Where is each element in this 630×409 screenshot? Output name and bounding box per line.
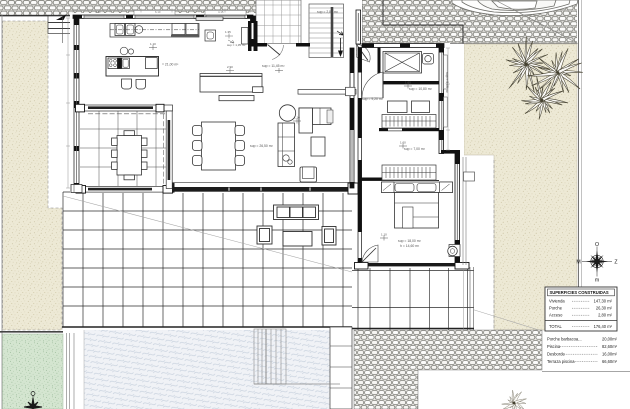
svg-text:sup = 11,45 m²: sup = 11,45 m² bbox=[262, 64, 285, 68]
svg-text:sup = 2,80 m²: sup = 2,80 m² bbox=[317, 10, 339, 14]
svg-text:Z: Z bbox=[614, 259, 617, 265]
svg-text:26,30 m²: 26,30 m² bbox=[596, 306, 613, 311]
svg-text:sup = 7,00 m²: sup = 7,00 m² bbox=[404, 147, 426, 151]
svg-text:1.10: 1.10 bbox=[150, 42, 156, 46]
svg-text:Piscina: Piscina bbox=[547, 344, 561, 349]
svg-text:sup = 5,05 m²: sup = 5,05 m² bbox=[445, 72, 449, 94]
svg-text:147,30 m²: 147,30 m² bbox=[594, 299, 613, 304]
svg-text:1.35: 1.35 bbox=[225, 30, 231, 34]
svg-text:66,60m²: 66,60m² bbox=[602, 359, 618, 364]
svg-text:16,00m²: 16,00m² bbox=[602, 352, 618, 357]
svg-text:2,80 m²: 2,80 m² bbox=[598, 313, 613, 318]
svg-text:sup = 18,00 m²: sup = 18,00 m² bbox=[398, 239, 422, 243]
svg-text:Porche barbacoa...: Porche barbacoa... bbox=[547, 337, 582, 342]
svg-text:= 21,00 m²: = 21,00 m² bbox=[162, 63, 179, 67]
svg-text:m: m bbox=[595, 278, 599, 284]
svg-text:Acceso: Acceso bbox=[549, 313, 563, 318]
svg-text:SUPERFICIES CONSTRUIDAS: SUPERFICIES CONSTRUIDAS bbox=[550, 290, 609, 295]
svg-text:sup = 9,20 m²: sup = 9,20 m² bbox=[362, 97, 384, 101]
svg-text:82,60m²: 82,60m² bbox=[602, 344, 618, 349]
svg-text:sup = 1,35 m²: sup = 1,35 m² bbox=[227, 43, 245, 47]
svg-text:Terraza piscina: Terraza piscina bbox=[547, 359, 575, 364]
svg-text:1.60: 1.60 bbox=[405, 81, 411, 85]
svg-text:sup = 26,50 m²: sup = 26,50 m² bbox=[250, 144, 274, 148]
svg-text:O: O bbox=[595, 242, 599, 248]
svg-text:Desborde: Desborde bbox=[547, 352, 565, 357]
svg-text:20,00m²: 20,00m² bbox=[602, 337, 618, 342]
svg-text:2.90: 2.90 bbox=[227, 65, 233, 69]
svg-text:Porche: Porche bbox=[549, 306, 563, 311]
svg-text:1.10: 1.10 bbox=[381, 233, 387, 237]
svg-text:176,40 m²: 176,40 m² bbox=[594, 324, 613, 329]
svg-text:1.10: 1.10 bbox=[294, 116, 300, 120]
svg-text:h = 14,60 m²: h = 14,60 m² bbox=[400, 244, 420, 248]
svg-text:M: M bbox=[576, 259, 580, 265]
svg-text:1.60: 1.60 bbox=[400, 141, 406, 145]
svg-text:Vivienda: Vivienda bbox=[549, 299, 565, 304]
svg-text:sup = 10,80 m²: sup = 10,80 m² bbox=[409, 87, 433, 91]
svg-text:TOTAL: TOTAL bbox=[549, 324, 563, 329]
